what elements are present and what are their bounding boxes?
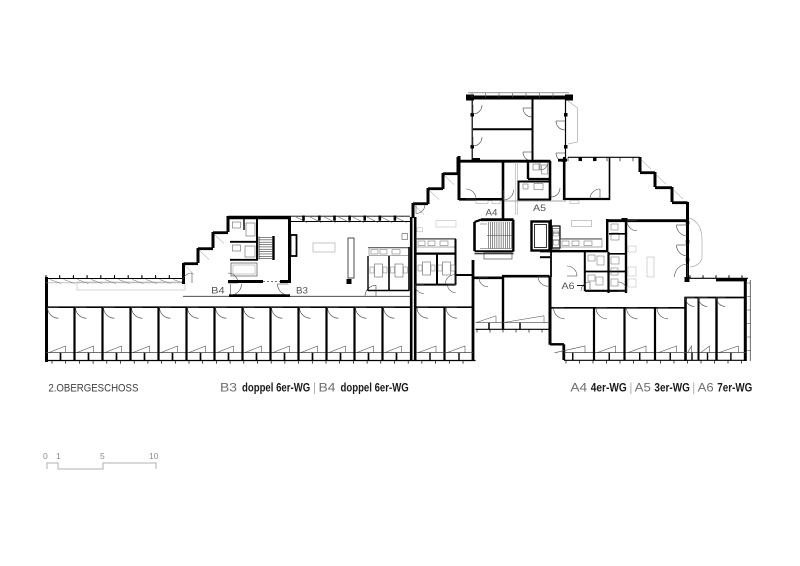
svg-text:A4: A4 <box>570 383 588 395</box>
svg-text:2.OBERGESCHOSS: 2.OBERGESCHOSS <box>48 383 138 395</box>
svg-text:|: | <box>313 383 316 395</box>
svg-text:doppel 6er-WG: doppel 6er-WG <box>242 383 310 395</box>
svg-text:3er-WG: 3er-WG <box>654 383 690 395</box>
svg-text:A5: A5 <box>635 383 651 395</box>
svg-text:B4: B4 <box>211 285 225 296</box>
svg-text:10: 10 <box>149 451 159 461</box>
svg-text:B3: B3 <box>220 383 237 395</box>
svg-text:|: | <box>629 383 632 395</box>
svg-text:5: 5 <box>100 451 105 461</box>
svg-text:|: | <box>692 383 695 395</box>
svg-text:B4: B4 <box>319 383 337 395</box>
svg-text:4er-WG: 4er-WG <box>591 383 627 395</box>
svg-text:A5: A5 <box>533 203 546 214</box>
svg-text:7er-WG: 7er-WG <box>717 383 752 395</box>
svg-text:A6: A6 <box>562 281 575 292</box>
svg-text:0: 0 <box>43 451 48 461</box>
svg-text:1: 1 <box>56 451 61 461</box>
svg-text:A6: A6 <box>698 383 714 395</box>
svg-text:A4: A4 <box>486 207 498 218</box>
svg-text:doppel 6er-WG: doppel 6er-WG <box>341 383 409 395</box>
svg-text:B3: B3 <box>296 285 308 296</box>
